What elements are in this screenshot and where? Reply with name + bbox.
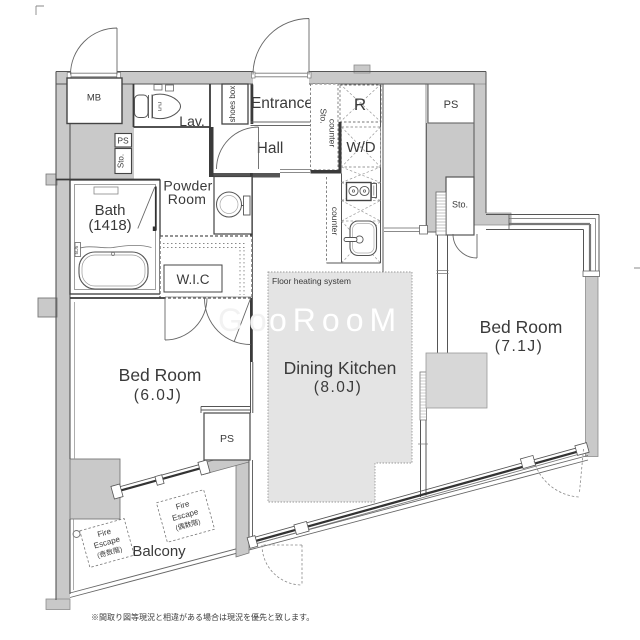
svg-text:※間取り図等現況と相違がある場合は現況を優先と致します。: ※間取り図等現況と相違がある場合は現況を優先と致します。 [91,612,314,622]
svg-text:Dining Kitchen: Dining Kitchen [284,358,397,378]
svg-text:PS: PS [220,433,234,445]
svg-text:oRooM: oRooM [269,302,402,338]
svg-text:5L/5: 5L/5 [74,245,79,254]
svg-text:Sto.: Sto. [117,154,126,168]
svg-text:(8.0J): (8.0J) [314,379,363,396]
svg-text:PS: PS [117,136,129,146]
svg-text:W/D: W/D [346,139,375,156]
svg-text:R: R [354,95,366,114]
svg-text:(6.0J): (6.0J) [134,387,183,404]
svg-text:Bed Room: Bed Room [480,317,563,337]
svg-text:shoes box: shoes box [228,86,237,122]
svg-text:(1418): (1418) [88,217,131,234]
svg-text:counter: counter [328,119,338,148]
svg-text:counter: counter [330,207,340,236]
svg-text:Sto.: Sto. [319,108,329,123]
svg-text:Go: Go [218,302,273,338]
svg-text:Lav.: Lav. [179,113,204,129]
svg-text:Balcony: Balcony [132,543,186,560]
svg-text:Hall: Hall [257,140,284,157]
svg-text:Sto.: Sto. [452,200,468,210]
svg-text:(7.1J): (7.1J) [495,338,544,355]
svg-text:Entrance: Entrance [251,95,313,112]
svg-text:W.I.C: W.I.C [177,272,210,287]
svg-text:MB: MB [87,93,101,104]
svg-text:PS: PS [444,99,459,111]
svg-text:Floor heating system: Floor heating system [272,276,351,286]
svg-text:Room: Room [168,191,207,207]
svg-text:Bed Room: Bed Room [119,365,202,385]
